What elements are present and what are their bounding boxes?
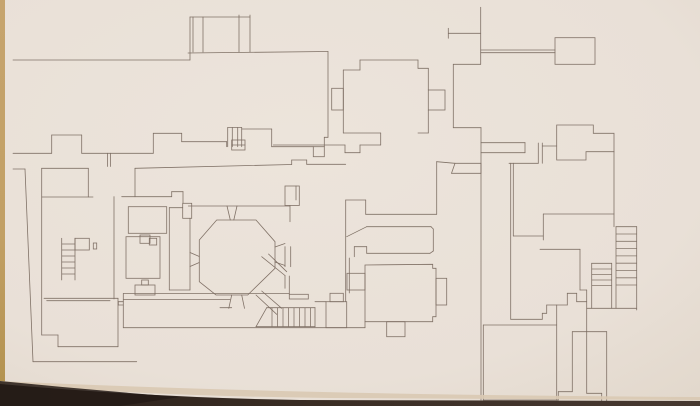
photo-left-border [0,0,5,390]
floorplan-drawing [0,0,700,406]
floor-plan-photo [0,0,700,406]
